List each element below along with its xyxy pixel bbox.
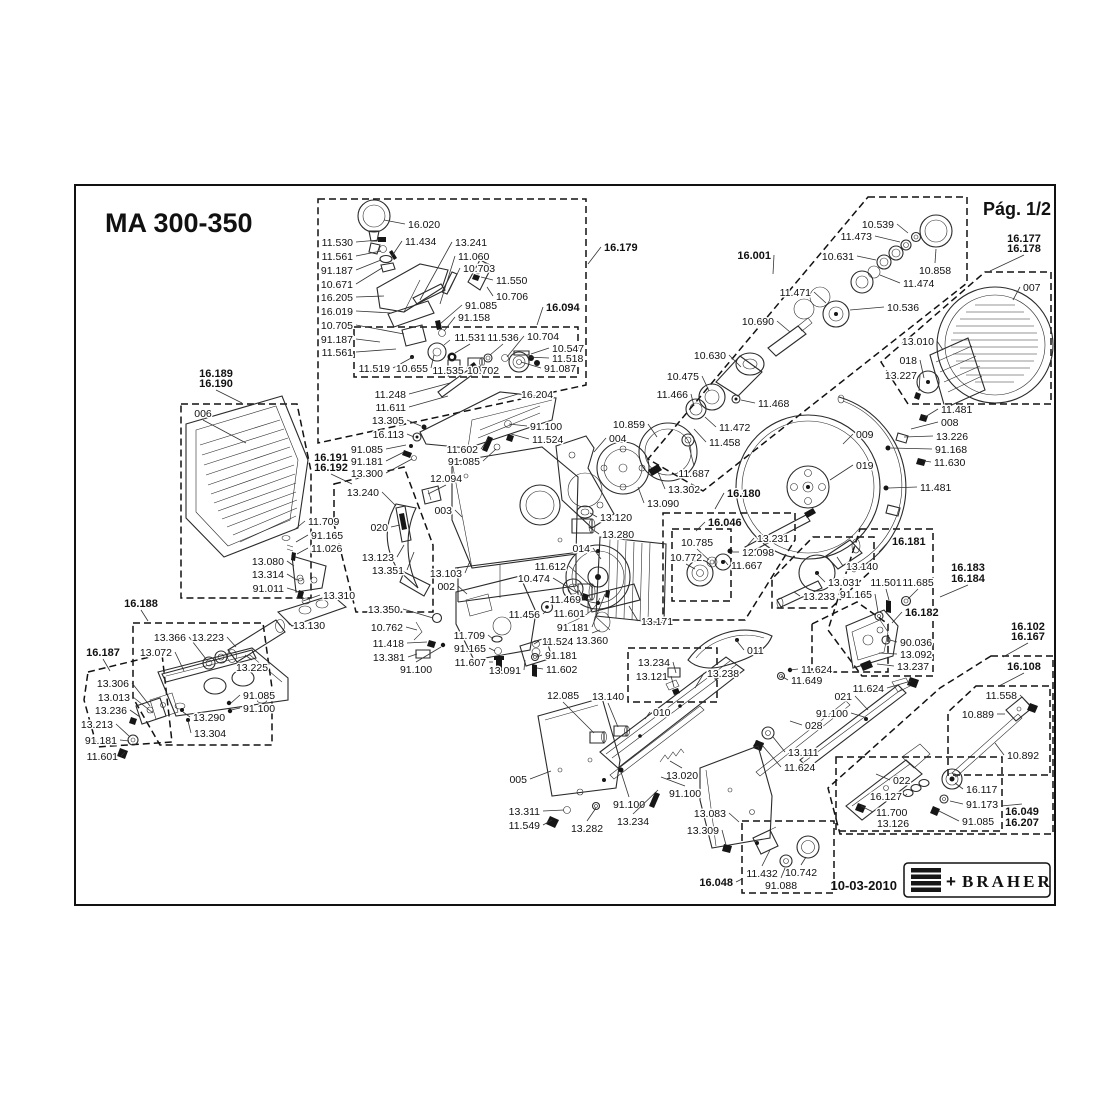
page-number: Pág. 1/2 bbox=[983, 199, 1051, 219]
part-label: 13.350 bbox=[368, 604, 400, 616]
part-label: 11.519 bbox=[359, 363, 390, 375]
part-label: 16.019 bbox=[321, 306, 353, 318]
part-label: 13.031 bbox=[828, 577, 860, 589]
part-label: 13.091 bbox=[489, 665, 521, 677]
part-label: 11.667 bbox=[731, 560, 762, 572]
part-label: 91.100 bbox=[669, 788, 701, 800]
part-label: 13.241 bbox=[455, 237, 487, 249]
part-label: 91.173 bbox=[966, 799, 998, 811]
group-label: 16.187 bbox=[86, 647, 120, 659]
part-label: 11.524 bbox=[542, 636, 573, 648]
part-label: 11.434 bbox=[405, 236, 436, 248]
part-label: 11.418 bbox=[373, 638, 404, 650]
part-label: 91.085 bbox=[243, 690, 275, 702]
part-label: 13.020 bbox=[666, 770, 698, 782]
part-label: 10.889 bbox=[962, 709, 994, 721]
part-label: 10.892 bbox=[1007, 750, 1039, 762]
group-label: 16.179 bbox=[604, 242, 638, 254]
part-label: 13.236 bbox=[95, 705, 127, 717]
part-label: 10.690 bbox=[742, 316, 774, 328]
part-label: 11.481 bbox=[920, 482, 951, 494]
part-label: 13.311 bbox=[509, 806, 540, 818]
part-label: 13.310 bbox=[323, 590, 355, 602]
part-label: 018 bbox=[899, 355, 917, 367]
page-title: MA 300-350 bbox=[105, 208, 253, 238]
part-label: 13.171 bbox=[641, 616, 673, 628]
part-label: 11.026 bbox=[311, 543, 342, 555]
part-label: 16.113 bbox=[373, 429, 404, 441]
part-label: 13.381 bbox=[373, 652, 405, 664]
part-label: 16.205 bbox=[321, 292, 353, 304]
group-label: 16.108 bbox=[1007, 661, 1041, 673]
part-label: 10.742 bbox=[785, 867, 817, 879]
part-label: 014 bbox=[572, 543, 590, 555]
part-label: 11.466 bbox=[657, 389, 688, 401]
part-label: 11.607 bbox=[455, 657, 486, 669]
part-label: 13.234 bbox=[617, 816, 649, 828]
part-label: 10.785 bbox=[681, 537, 713, 549]
part-label: 006 bbox=[194, 408, 212, 420]
part-label: 91.085 bbox=[962, 816, 994, 828]
part-label: 13.225 bbox=[236, 662, 268, 674]
part-label: 13.121 bbox=[636, 671, 668, 683]
group-label: 16.182 bbox=[905, 607, 939, 619]
part-label: 11.432 bbox=[746, 868, 777, 880]
part-label: 10.772 bbox=[670, 552, 702, 564]
part-label: 13.304 bbox=[194, 728, 226, 740]
part-label: 13.111 bbox=[788, 747, 819, 759]
part-label: 13.126 bbox=[877, 818, 909, 830]
part-label: 13.240 bbox=[347, 487, 379, 499]
part-label: 010 bbox=[653, 707, 671, 719]
part-label: 13.290 bbox=[193, 712, 225, 724]
group-label: 16.046 bbox=[708, 517, 742, 529]
part-label: 11.501 bbox=[870, 577, 901, 589]
part-label: 11.474 bbox=[903, 278, 934, 290]
part-label: 91.168 bbox=[935, 444, 967, 456]
part-label: 13.231 bbox=[757, 533, 789, 545]
part-label: 10.474 bbox=[518, 573, 550, 585]
part-label: 019 bbox=[856, 460, 874, 472]
part-label: 021 bbox=[834, 691, 852, 703]
part-label: 91.181 bbox=[351, 456, 383, 468]
part-label: 11.248 bbox=[375, 389, 406, 401]
part-label: 91.181 bbox=[545, 650, 577, 662]
part-label: 10.630 bbox=[694, 350, 726, 362]
part-label: 11.630 bbox=[934, 457, 965, 469]
part-label: 91.181 bbox=[557, 622, 589, 634]
part-label: 91.085 bbox=[448, 456, 480, 468]
part-label: 10.539 bbox=[862, 219, 894, 231]
group-label: 16.094 bbox=[546, 302, 581, 314]
part-label: 16.020 bbox=[408, 219, 440, 231]
part-label: 13.120 bbox=[600, 512, 632, 524]
part-label: 11.473 bbox=[841, 231, 872, 243]
part-label: 13.010 bbox=[902, 336, 934, 348]
part-label: 11.624 bbox=[784, 762, 815, 774]
part-label: 13.309 bbox=[687, 825, 719, 837]
part-label: 13.282 bbox=[571, 823, 603, 835]
part-label: 10.631 bbox=[822, 251, 854, 263]
part-label: 91.100 bbox=[816, 708, 848, 720]
part-label: 13.351 bbox=[372, 565, 404, 577]
part-label: 91.187 bbox=[321, 334, 353, 346]
part-label: 91.011 bbox=[253, 583, 284, 595]
part-label: 13.360 bbox=[576, 635, 608, 647]
group-label: 16.178 bbox=[1007, 243, 1041, 255]
part-label: 13.305 bbox=[372, 415, 404, 427]
part-label: 13.090 bbox=[647, 498, 679, 510]
part-label: 11.687 bbox=[678, 468, 709, 480]
part-label: 003 bbox=[434, 505, 452, 517]
part-label: 11.649 bbox=[791, 675, 822, 687]
part-label: 004 bbox=[609, 433, 627, 445]
part-label: 13.227 bbox=[885, 370, 917, 382]
group-label: 16.180 bbox=[727, 488, 761, 500]
part-label: 91.158 bbox=[458, 312, 490, 324]
part-label: 12.094 bbox=[430, 473, 462, 485]
part-label: 11.611 bbox=[375, 402, 406, 414]
group-label: 16.207 bbox=[1005, 817, 1039, 829]
part-label: 12.085 bbox=[547, 690, 579, 702]
part-label: 11.602 bbox=[546, 664, 577, 676]
part-label: 028 bbox=[805, 720, 823, 732]
group-label: 16.190 bbox=[199, 378, 233, 390]
part-label: 13.280 bbox=[602, 529, 634, 541]
part-label: 11.550 bbox=[496, 275, 527, 287]
part-label: 13.306 bbox=[97, 678, 129, 690]
part-label: 002 bbox=[437, 581, 455, 593]
part-label: 13.213 bbox=[81, 719, 113, 731]
brand-name: BRAHER bbox=[962, 872, 1053, 891]
part-label: 13.080 bbox=[252, 556, 284, 568]
part-label: 11.524 bbox=[532, 434, 563, 446]
part-label: 10.704 bbox=[527, 331, 559, 343]
part-label: 91.085 bbox=[351, 444, 383, 456]
part-label: 11.601 bbox=[87, 751, 118, 763]
part-label: 11.561 bbox=[322, 251, 353, 263]
part-label: 13.223 bbox=[192, 632, 224, 644]
part-label: 13.013 bbox=[98, 692, 130, 704]
group-label: 16.001 bbox=[737, 250, 771, 262]
part-label: 91.100 bbox=[613, 799, 645, 811]
part-label: 13.140 bbox=[846, 561, 878, 573]
group-label: 16.184 bbox=[951, 573, 986, 585]
part-label: 10.859 bbox=[613, 419, 645, 431]
part-label: 11.685 bbox=[902, 577, 933, 589]
part-label: 10.706 bbox=[496, 291, 528, 303]
part-label: 10.655 bbox=[396, 363, 428, 375]
part-label: 11.535 bbox=[432, 365, 463, 377]
part-label: 13.237 bbox=[897, 661, 929, 673]
group-label: 16.192 bbox=[314, 462, 348, 474]
part-label: 10.536 bbox=[887, 302, 919, 314]
part-label: 009 bbox=[856, 429, 874, 441]
part-label: 13.300 bbox=[351, 468, 383, 480]
brand-plus-icon: + bbox=[946, 872, 956, 891]
part-label: 91.165 bbox=[311, 530, 343, 542]
part-label: 11.458 bbox=[709, 437, 740, 449]
part-label: 11.536 bbox=[487, 332, 518, 344]
part-label: 11.602 bbox=[447, 444, 478, 456]
part-label: 16.204 bbox=[521, 389, 553, 401]
part-label: 022 bbox=[893, 775, 911, 787]
part-label: 13.103 bbox=[430, 568, 462, 580]
group-label: 16.167 bbox=[1011, 631, 1045, 643]
part-label: 005 bbox=[509, 774, 527, 786]
part-label: 11.561 bbox=[322, 347, 353, 359]
part-label: 11.709 bbox=[454, 630, 485, 642]
part-label: 13.314 bbox=[252, 569, 284, 581]
part-label: 13.234 bbox=[638, 657, 670, 669]
part-label: 11.469 bbox=[550, 594, 581, 606]
group-label: 16.048 bbox=[699, 877, 733, 889]
part-label: 13.083 bbox=[694, 808, 726, 820]
part-label: 13.140 bbox=[592, 691, 624, 703]
part-label: 11.601 bbox=[554, 608, 585, 620]
part-label: 13.302 bbox=[668, 484, 700, 496]
part-label: 16.117 bbox=[966, 784, 997, 796]
part-label: 91.100 bbox=[530, 421, 562, 433]
part-label: 11.481 bbox=[941, 404, 972, 416]
part-label: 007 bbox=[1023, 282, 1041, 294]
part-label: 13.092 bbox=[900, 649, 932, 661]
part-label: 91.100 bbox=[243, 703, 275, 715]
part-label: 11.624 bbox=[853, 683, 884, 695]
part-label: 91.165 bbox=[454, 643, 486, 655]
part-label: 10.703 bbox=[463, 263, 495, 275]
part-label: 13.226 bbox=[936, 431, 968, 443]
part-label: 16.127 bbox=[870, 791, 902, 803]
part-label: 91.181 bbox=[85, 735, 117, 747]
revision-date: 10-03-2010 bbox=[831, 878, 898, 893]
part-label: 91.085 bbox=[465, 300, 497, 312]
part-label: 008 bbox=[941, 417, 959, 429]
group-label: 16.181 bbox=[892, 536, 926, 548]
part-label: 91.088 bbox=[765, 880, 797, 892]
part-label: 13.238 bbox=[707, 668, 739, 680]
part-label: 10.705 bbox=[321, 320, 353, 332]
part-label: 11.530 bbox=[322, 237, 353, 249]
part-label: 10.702 bbox=[467, 365, 499, 377]
part-label: 13.366 bbox=[154, 632, 186, 644]
part-label: 13.123 bbox=[362, 552, 394, 564]
part-label: 11.558 bbox=[986, 690, 1017, 702]
part-label: 11.612 bbox=[535, 561, 566, 573]
part-label: 13.233 bbox=[803, 591, 835, 603]
part-label: 12.098 bbox=[742, 547, 774, 559]
exploded-diagram: MA 300-350 Pág. 1/2 bbox=[0, 0, 1100, 1100]
part-label: 10.671 bbox=[321, 279, 353, 291]
part-label: 11.549 bbox=[509, 820, 540, 832]
part-label: 91.165 bbox=[840, 589, 872, 601]
part-label: 10.762 bbox=[371, 622, 403, 634]
part-label: 13.072 bbox=[140, 647, 172, 659]
part-label: 13.130 bbox=[293, 620, 325, 632]
part-label: 11.531 bbox=[454, 332, 485, 344]
part-label: 020 bbox=[370, 522, 388, 534]
part-label: 011 bbox=[747, 645, 764, 657]
part-label: 11.456 bbox=[509, 609, 540, 621]
part-label: 11.471 bbox=[780, 287, 811, 299]
part-label: 91.187 bbox=[321, 265, 353, 277]
group-label: 16.188 bbox=[124, 598, 158, 610]
part-label: 11.468 bbox=[758, 398, 789, 410]
part-label: 91.087 bbox=[544, 363, 576, 375]
part-label: 10.858 bbox=[919, 265, 951, 277]
part-label: 10.475 bbox=[667, 371, 699, 383]
part-label: 11.709 bbox=[308, 516, 339, 528]
part-label: 11.472 bbox=[719, 422, 750, 434]
part-label: 11.060 bbox=[458, 251, 489, 263]
part-label: 90.036 bbox=[900, 637, 932, 649]
part-label: 91.100 bbox=[400, 664, 432, 676]
